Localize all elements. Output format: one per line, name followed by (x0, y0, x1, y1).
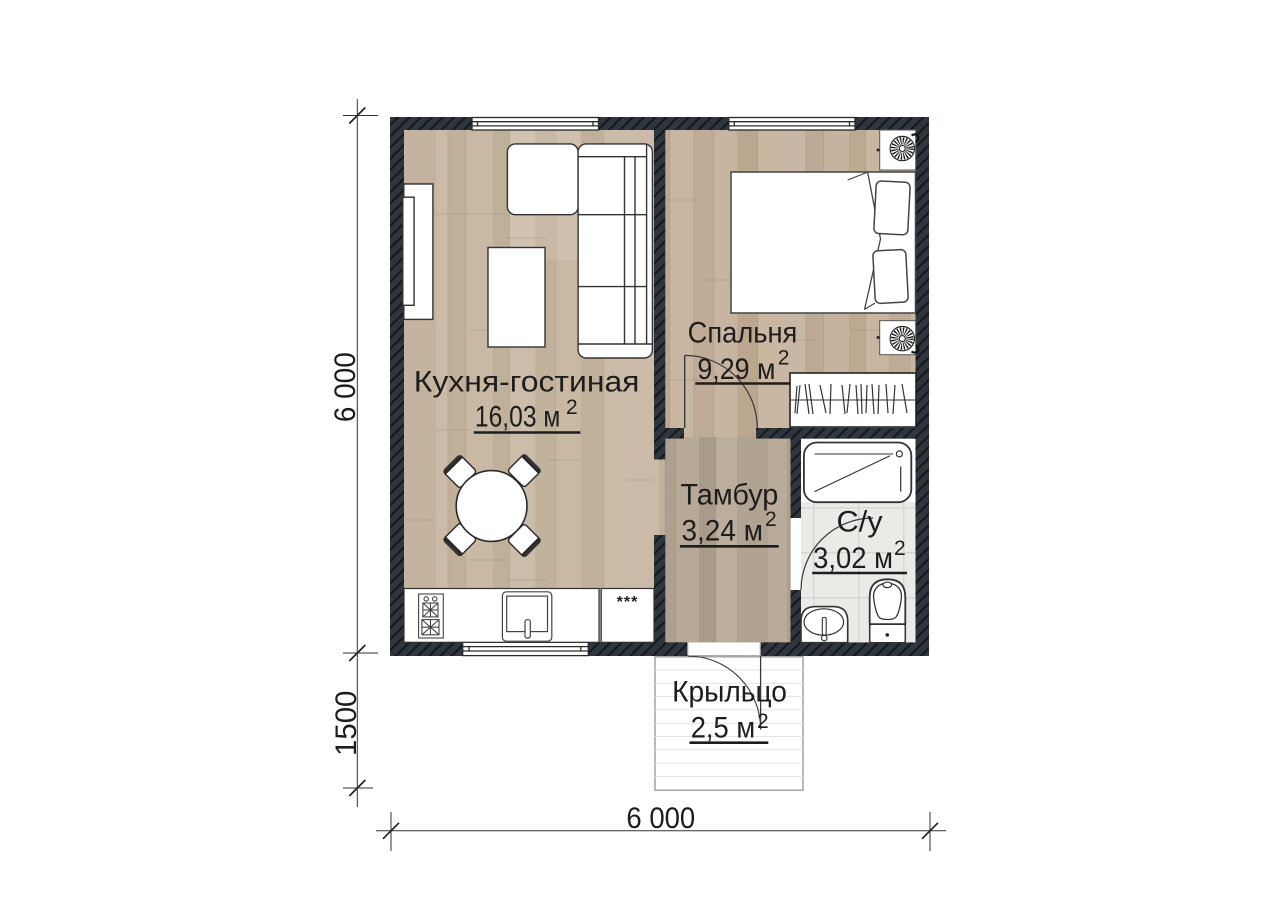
svg-text:6 000: 6 000 (626, 802, 695, 835)
svg-text:3,24 м: 3,24 м (681, 515, 763, 548)
svg-text:1500: 1500 (330, 691, 363, 756)
svg-text:16,03 м: 16,03 м (475, 400, 560, 434)
svg-text:6 000: 6 000 (329, 352, 362, 422)
svg-text:3,02 м: 3,02 м (813, 542, 893, 575)
svg-text:2: 2 (765, 508, 777, 531)
svg-text:Крыльцо: Крыльцо (672, 676, 787, 709)
svg-text:2: 2 (757, 710, 769, 733)
svg-text:2: 2 (894, 537, 906, 560)
svg-text:С/у: С/у (837, 506, 883, 538)
svg-text:Тамбур: Тамбур (680, 479, 778, 511)
svg-text:2: 2 (566, 396, 578, 419)
svg-text:9,29 м: 9,29 м (697, 352, 775, 385)
svg-text:Кухня-гостиная: Кухня-гостиная (414, 364, 640, 398)
svg-text:***: *** (617, 594, 639, 611)
svg-text:Спальня: Спальня (688, 317, 798, 350)
svg-text:2,5 м: 2,5 м (691, 712, 755, 745)
svg-text:2: 2 (778, 347, 790, 370)
